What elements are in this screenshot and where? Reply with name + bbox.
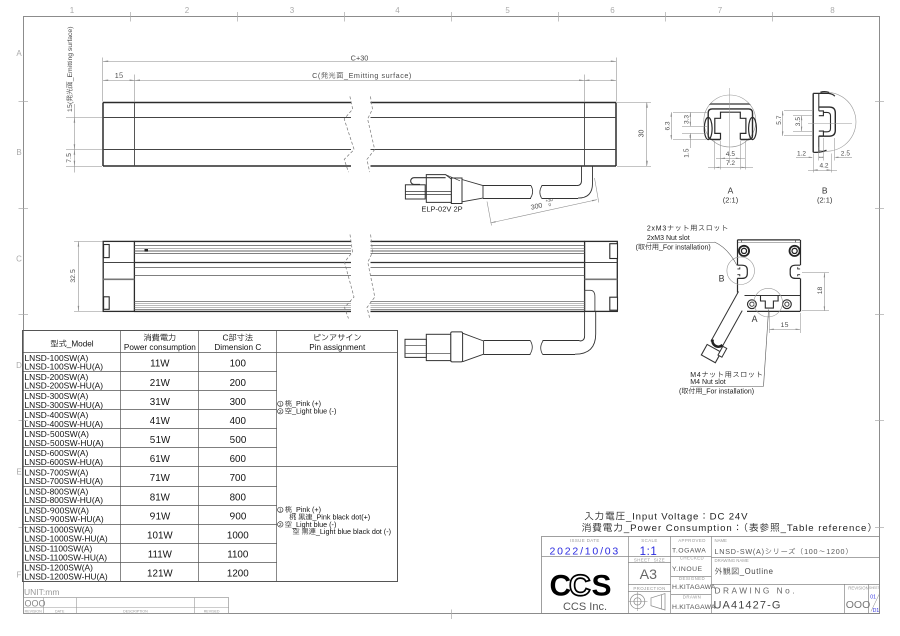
svg-text:61W: 61W <box>150 453 171 467</box>
svg-text:700: 700 <box>230 472 247 486</box>
svg-text:4: 4 <box>395 5 400 17</box>
svg-text:DESIGNED: DESIGNED <box>679 575 705 582</box>
svg-text:LNSD-SW(A)シリーズ（100〜1200）: LNSD-SW(A)シリーズ（100〜1200） <box>715 547 854 558</box>
svg-text:H.KITAGAWA: H.KITAGAWA <box>672 602 716 612</box>
svg-text:F: F <box>17 570 22 582</box>
svg-text:600: 600 <box>230 453 247 467</box>
svg-text:D: D <box>16 360 22 372</box>
svg-text:PROJECTION: PROJECTION <box>633 585 665 592</box>
svg-text:外観図_Outline: 外観図_Outline <box>715 567 774 578</box>
svg-text:100: 100 <box>230 358 247 372</box>
svg-text:REVISION: REVISION <box>848 584 869 591</box>
svg-text:81W: 81W <box>150 491 171 505</box>
svg-text:REVISED: REVISED <box>204 609 220 615</box>
svg-text:71W: 71W <box>150 472 171 486</box>
svg-text:C(発光面_Emitting surface): C(発光面_Emitting surface) <box>312 71 412 82</box>
svg-text:DESCRIPTION: DESCRIPTION <box>123 609 148 615</box>
svg-text:30: 30 <box>638 130 648 138</box>
svg-text:4.2: 4.2 <box>819 161 828 171</box>
svg-text:B: B <box>719 273 725 286</box>
svg-text:(2:1): (2:1) <box>817 196 833 207</box>
svg-text:15: 15 <box>781 320 789 330</box>
svg-text:121W: 121W <box>147 568 173 582</box>
svg-text:T.OGAWA: T.OGAWA <box>672 545 706 555</box>
svg-text:2: 2 <box>185 5 190 17</box>
svg-text:(取付用_For installation): (取付用_For installation) <box>636 243 711 253</box>
svg-text:Dimension C: Dimension C <box>214 341 261 354</box>
svg-text:6: 6 <box>610 5 615 17</box>
svg-text:7.5: 7.5 <box>64 153 74 163</box>
svg-text:Pin assignment: Pin assignment <box>309 341 366 354</box>
svg-text:2.5: 2.5 <box>841 148 851 158</box>
svg-text:5: 5 <box>505 5 510 17</box>
svg-text:1000: 1000 <box>227 529 249 543</box>
svg-text:ELP-02V 2P: ELP-02V 2P <box>421 205 462 216</box>
svg-text:32.5: 32.5 <box>68 269 78 283</box>
svg-text:2: 2 <box>279 522 282 529</box>
svg-text:Power consumption: Power consumption <box>124 341 196 354</box>
svg-text:5.7: 5.7 <box>774 115 784 125</box>
svg-text:LNSD-1200SW-HU(A): LNSD-1200SW-HU(A) <box>25 570 108 583</box>
svg-text:型式_Model: 型式_Model <box>50 337 93 350</box>
svg-text:900: 900 <box>229 510 247 524</box>
svg-text:51W: 51W <box>149 434 171 448</box>
svg-text:1100: 1100 <box>227 549 249 563</box>
svg-text:B: B <box>16 147 21 159</box>
svg-text:1: 1 <box>70 5 75 17</box>
svg-text:7: 7 <box>718 5 723 17</box>
svg-text:空 黒連_Light blue black dot (-): 空 黒連_Light blue black dot (-) <box>293 527 392 538</box>
svg-text:111W: 111W <box>148 549 173 563</box>
svg-text:C+30: C+30 <box>351 54 369 65</box>
svg-text:NAME: NAME <box>715 537 728 544</box>
svg-text:H.KITAGAWA: H.KITAGAWA <box>672 582 716 592</box>
svg-text:1: 1 <box>279 402 282 409</box>
svg-text:101W: 101W <box>147 529 173 543</box>
svg-text:1.2: 1.2 <box>797 148 806 158</box>
svg-text:15: 15 <box>115 71 124 82</box>
svg-text:SHEET: SHEET <box>869 586 880 591</box>
svg-text:31W: 31W <box>150 396 171 410</box>
svg-text:1: 1 <box>279 508 282 515</box>
svg-text:DRAWING NAME: DRAWING NAME <box>715 557 749 564</box>
svg-text:200: 200 <box>230 377 247 391</box>
svg-text:6.3: 6.3 <box>663 121 673 130</box>
svg-text:15(発光面_Emitting surface): 15(発光面_Emitting surface) <box>65 27 75 113</box>
svg-text:18: 18 <box>815 287 825 295</box>
svg-text:3: 3 <box>290 5 295 17</box>
svg-text:DRAWN: DRAWN <box>683 593 701 600</box>
svg-text:1:1: 1:1 <box>640 544 658 561</box>
svg-text:A3: A3 <box>640 565 657 586</box>
svg-text:800: 800 <box>230 491 247 505</box>
svg-text:400: 400 <box>230 415 247 429</box>
svg-text:CCS Inc.: CCS Inc. <box>563 598 607 615</box>
svg-text:CHECKED: CHECKED <box>680 555 704 562</box>
svg-text:DRAWING No.: DRAWING No. <box>715 584 798 597</box>
svg-text:E: E <box>16 467 21 479</box>
svg-text:3.5: 3.5 <box>793 117 803 127</box>
svg-text:(取付用_For installation): (取付用_For installation) <box>679 387 754 397</box>
svg-text:REVISION: REVISION <box>25 609 43 615</box>
svg-text:8: 8 <box>830 5 835 17</box>
svg-text:A: A <box>752 313 758 326</box>
svg-text:UA41427-G: UA41427-G <box>714 597 782 614</box>
svg-text:2: 2 <box>279 409 282 416</box>
svg-text:1200: 1200 <box>227 568 249 582</box>
svg-text:21W: 21W <box>150 377 171 391</box>
svg-text:7.2: 7.2 <box>726 158 735 168</box>
svg-text:01: 01 <box>870 595 876 602</box>
svg-text:消費電力_Power Consumption：（表参照_Ta: 消費電力_Power Consumption：（表参照_Table refere… <box>582 522 878 536</box>
svg-text:11W: 11W <box>150 358 170 372</box>
svg-text:OOO: OOO <box>846 597 871 613</box>
svg-text:Y.INOUE: Y.INOUE <box>672 564 703 574</box>
svg-text:(2:1): (2:1) <box>723 196 739 207</box>
svg-text:91W: 91W <box>149 510 171 524</box>
svg-text:2022/10/03: 2022/10/03 <box>550 543 621 559</box>
svg-text:C: C <box>16 254 22 266</box>
svg-text:A: A <box>16 48 22 60</box>
svg-text:空_Light blue (-): 空_Light blue (-) <box>285 407 337 418</box>
svg-text:3.3: 3.3 <box>682 115 692 124</box>
svg-text:DATE: DATE <box>55 609 65 615</box>
svg-text:300: 300 <box>230 396 247 410</box>
svg-text:APPROVED: APPROVED <box>678 537 706 544</box>
svg-text:1.5: 1.5 <box>682 148 692 158</box>
svg-text:SCALE: SCALE <box>641 537 657 544</box>
svg-text:41W: 41W <box>150 415 171 429</box>
svg-text:500: 500 <box>229 434 247 448</box>
svg-text:D1: D1 <box>873 608 880 615</box>
